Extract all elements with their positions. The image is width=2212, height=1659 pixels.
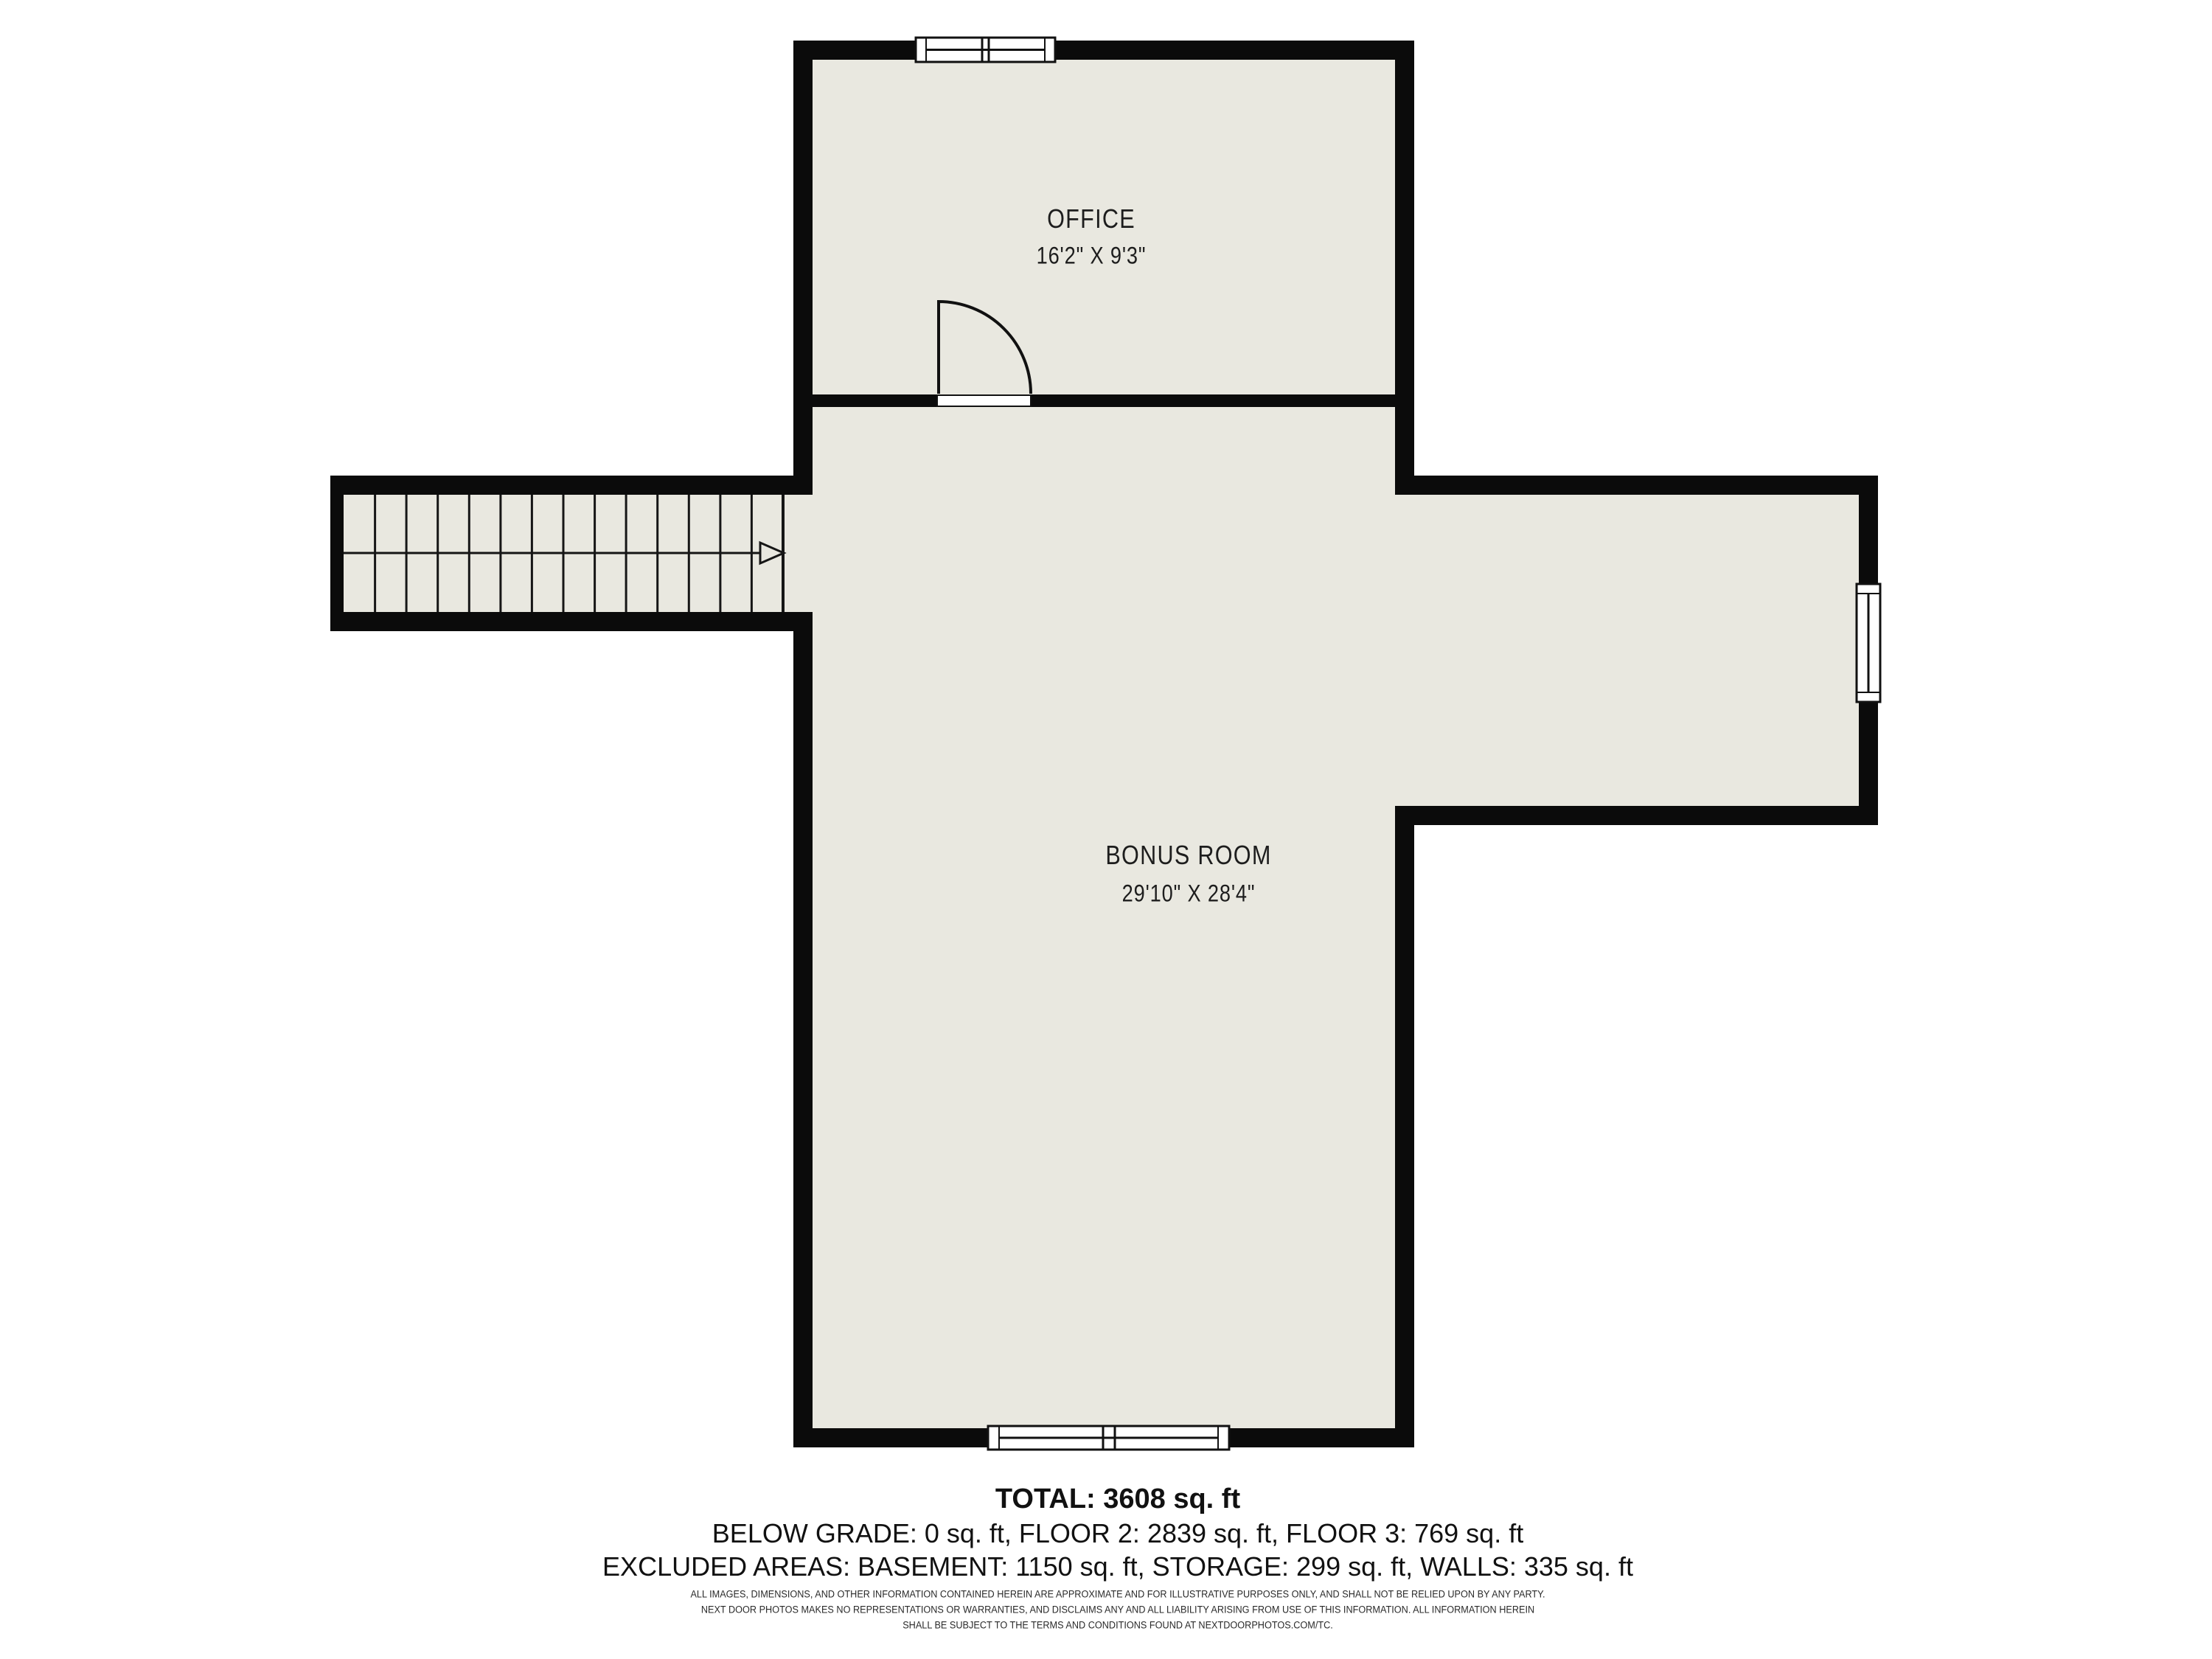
office-room-label-text: OFFICE xyxy=(1047,204,1135,234)
office-room-dimensions: 16'2" X 9'3" xyxy=(1026,243,1155,268)
floor-areas-text: BELOW GRADE: 0 sq. ft, FLOOR 2: 2839 sq.… xyxy=(712,1519,1523,1548)
bonus-room-dimensions-text: 29'10" X 28'4" xyxy=(1122,880,1256,906)
disclaimer-line-1-text: ALL IMAGES, DIMENSIONS, AND OTHER INFORM… xyxy=(690,1590,1545,1601)
office-room-label: OFFICE xyxy=(1040,204,1144,234)
window-office-top xyxy=(916,38,1055,62)
total-area-text: TOTAL: 3608 sq. ft xyxy=(995,1484,1240,1515)
office-door-opening xyxy=(937,395,1031,406)
disclaimer-line-2: NEXT DOOR PHOTOS MAKES NO REPRESENTATION… xyxy=(675,1605,1561,1616)
excluded-areas-text: EXCLUDED AREAS: BASEMENT: 1150 sq. ft, S… xyxy=(602,1552,1633,1582)
office-room-dimensions-text: 16'2" X 9'3" xyxy=(1037,243,1147,268)
bonus-room-floor xyxy=(813,407,1395,1428)
bonus-room-label-text: BONUS ROOM xyxy=(1105,841,1271,870)
bonus-room-dimensions: 29'10" X 28'4" xyxy=(1110,880,1267,906)
disclaimer-line-2-text: NEXT DOOR PHOTOS MAKES NO REPRESENTATION… xyxy=(701,1605,1534,1616)
bonus-room-label: BONUS ROOM xyxy=(1091,841,1286,870)
window-bonus-bottom xyxy=(988,1426,1229,1450)
disclaimer-line-3: SHALL BE SUBJECT TO THE TERMS AND CONDIT… xyxy=(889,1621,1347,1632)
disclaimer-line-3-text: SHALL BE SUBJECT TO THE TERMS AND CONDIT… xyxy=(902,1621,1333,1632)
extension-floor xyxy=(1395,495,1859,806)
disclaimer-line-1: ALL IMAGES, DIMENSIONS, AND OTHER INFORM… xyxy=(663,1590,1572,1601)
window-extension-right xyxy=(1857,584,1880,702)
floorplan-page: OFFICE 16'2" X 9'3" BONUS ROOM 29'10" X … xyxy=(0,0,2212,1659)
